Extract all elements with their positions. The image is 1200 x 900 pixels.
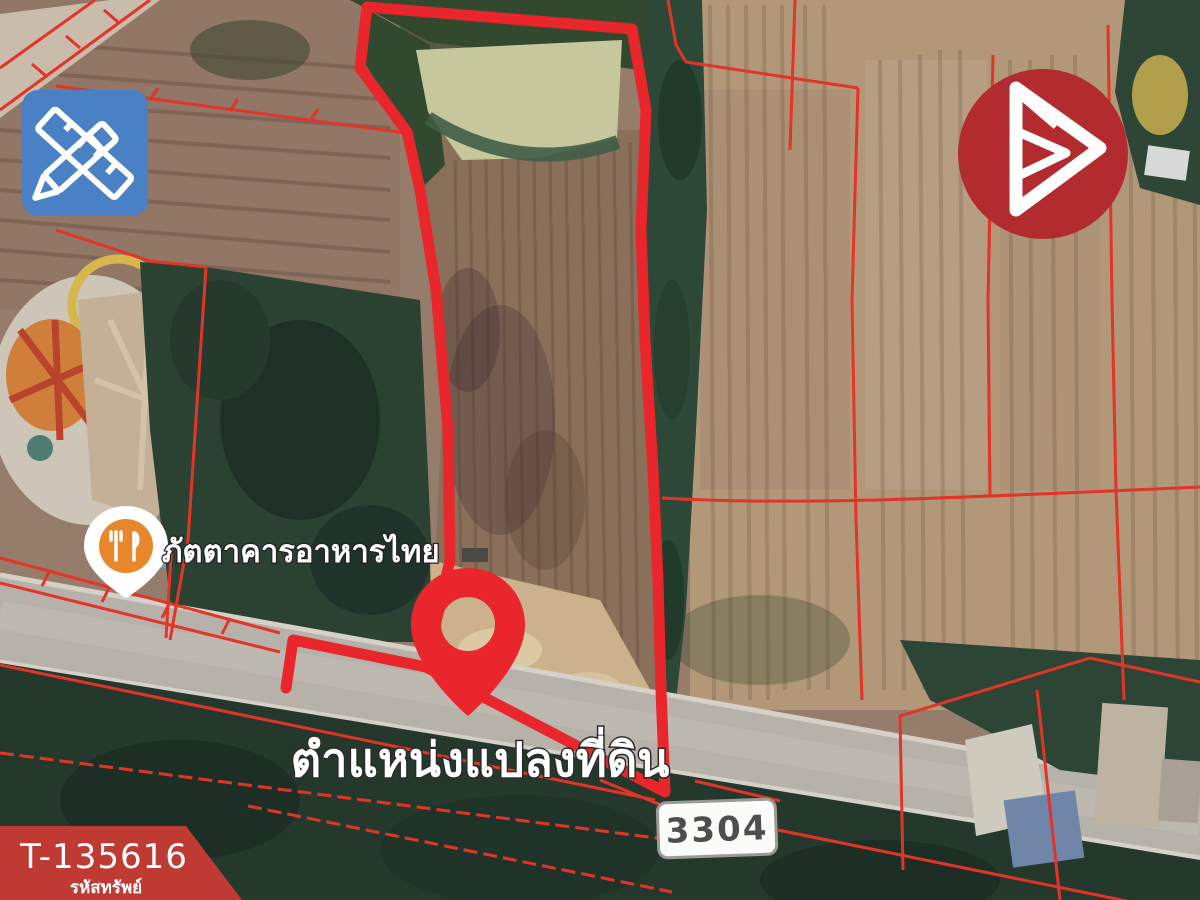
satellite-map: ภัตตาคารอาหารไทย ตำแหน่งแปลงที่ดิน 3304 (0, 0, 1200, 900)
restaurant-icon-circle (99, 519, 153, 573)
measure-tool-icon[interactable] (22, 90, 148, 216)
route-badge: 3304 (657, 799, 777, 858)
property-code: T-135616 (19, 837, 188, 877)
forest-parcel (140, 262, 432, 642)
land-position-label: ตำแหน่งแปลงที่ดิน (291, 726, 670, 788)
route-badge-number: 3304 (665, 808, 769, 852)
land-plot-map-image: ภัตตาคารอาหารไทย ตำแหน่งแปลงที่ดิน 3304 (0, 0, 1200, 900)
restaurant-label: ภัตตาคารอาหารไทย (162, 533, 440, 570)
property-code-label: รหัสทรัพย์ (70, 877, 142, 898)
brand-logo (958, 69, 1128, 239)
